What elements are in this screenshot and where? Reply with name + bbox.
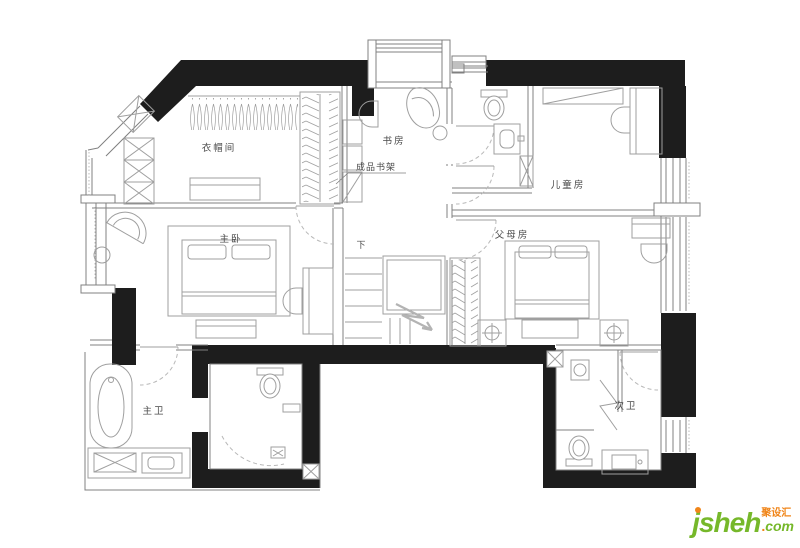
label-stairs-down: 下 [356,241,365,251]
wall-stairhall [333,208,343,345]
kids-desk [630,88,662,154]
walls-thin [81,40,700,490]
wall-right-upper [659,86,686,158]
parents-desk [632,218,670,263]
master-armchair [94,205,154,263]
toilet-symbol [481,90,507,120]
study-bookshelf [343,120,362,202]
door-arc-secondbath [620,352,658,390]
lamp-symbol [604,323,624,343]
label-kids-room: 儿童房 [551,179,586,191]
masterbath-fixtures [88,364,190,478]
wall-toiletroom-left-a [192,345,208,398]
baywindow-post [368,40,376,88]
stairs-break-arrow [396,304,432,330]
wall-left [112,288,136,365]
window-kids-right [666,158,686,203]
wall-master-bottom-left [90,340,112,345]
label-bookshelf: 成品书架 [356,161,396,173]
label-second-bath: 次卫 [614,400,637,412]
label-study: 书房 [382,135,405,147]
label-master-bedroom: 主卧 [219,233,242,245]
parents-desk-chair [641,244,667,263]
kids-furniture [543,88,662,154]
secondbath-fixtures [547,351,648,474]
site-logo: jsheh聚设汇.com [692,509,794,537]
toilet-symbol [566,436,592,466]
wall-topright [486,60,685,86]
room-labels: 衣帽间 书房 成品书架 儿童房 主卧 父母房 下 主卫 次卫 [142,135,637,417]
wall-bath-top [452,66,488,72]
wall-main-bottom [208,345,555,364]
wall-right-mid [661,313,696,417]
lamp-symbol [482,323,502,343]
small-bathroom [481,90,533,186]
door-arc-bath [456,126,494,164]
window-sill-right [654,203,700,216]
study-stool [433,126,447,140]
window-sill [81,285,115,293]
floor-plan: 衣帽间 书房 成品书架 儿童房 主卧 父母房 下 主卫 次卫 [0,0,800,543]
door-arc-cloakroom [296,206,334,244]
baywindow-post [442,40,450,88]
window-parents-right [666,217,686,311]
wall-secondbath-bottom [543,470,696,488]
toilet-symbol [257,368,283,398]
parents-bench [522,320,578,338]
kids-desk-chair [611,107,630,133]
wall-bath-right [528,86,533,188]
wall-study-top [374,82,452,88]
baywindow-glass [368,40,450,52]
cloakroom-rack-side [300,92,340,204]
label-master-bath: 主卫 [142,405,165,417]
window-sill [81,195,115,203]
label-parents-room: 父母房 [495,229,530,241]
wall-kids-bottom [452,210,661,216]
wardrobe-parents [450,258,480,346]
wall-bath-bottom [452,188,532,193]
door-arc-parents [456,220,496,260]
outline-toiletroom [210,364,302,469]
logo-tld-text: com [765,518,794,534]
label-cloakroom: 衣帽间 [202,142,237,154]
door-arc-kids [456,166,494,204]
logo-brand-text: jsheh [692,509,760,537]
vanity [494,124,520,154]
parents-bed-symbol [478,241,628,346]
cloakroom-rack-top [188,96,300,130]
window-secondbath-right [666,417,686,453]
stairs-symbol [345,256,445,344]
door-arc-masterbath [140,347,178,385]
master-bench [196,320,256,338]
floor-plan-svg: 衣帽间 书房 成品书架 儿童房 主卧 父母房 下 主卫 次卫 [0,0,800,543]
wall-toiletroom-left-b [192,432,208,488]
master-desk-chair [283,288,302,314]
cloakroom-bench [190,178,260,200]
